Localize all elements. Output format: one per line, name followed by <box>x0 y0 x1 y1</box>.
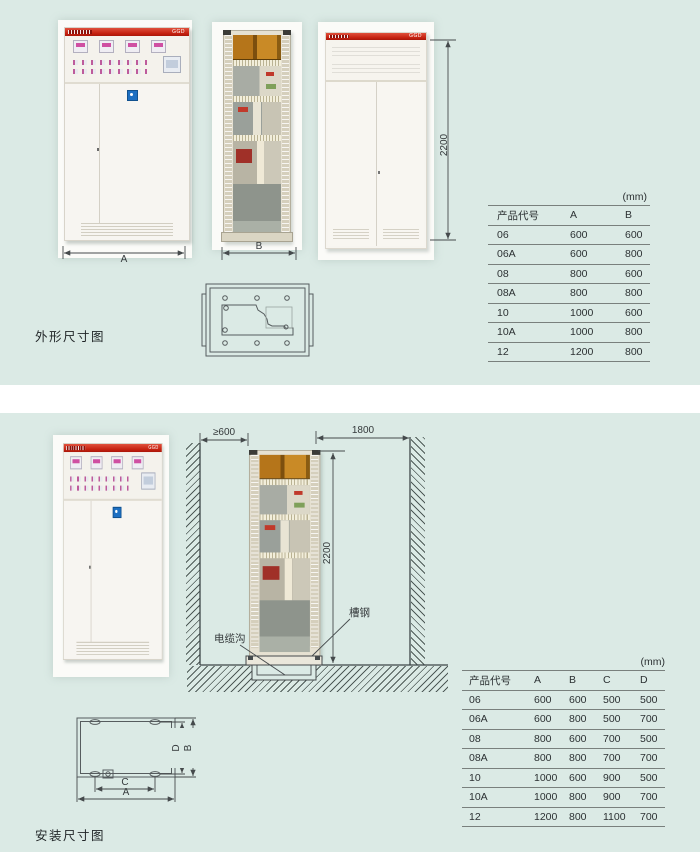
table-row: 08A800800700700 <box>462 749 665 769</box>
table-cell: 700 <box>601 733 638 745</box>
table-row: 06600600500500 <box>462 691 665 711</box>
cabinet-header-band: GGD <box>65 28 189 36</box>
cabinet-doors <box>64 501 162 659</box>
model-label: GGD <box>172 29 185 35</box>
door-seam <box>376 82 377 246</box>
table-cell: 08A <box>462 752 532 764</box>
ventilation-grille <box>76 642 149 655</box>
table-cell: 800 <box>532 752 567 764</box>
table-cell: 700 <box>638 713 665 725</box>
table-cell: 06A <box>488 248 568 260</box>
table-cell: 900 <box>601 772 638 784</box>
plan-dim-d-label: D <box>171 728 183 768</box>
louver-panel <box>326 40 426 82</box>
table-row: 101000600900500 <box>462 769 665 789</box>
table-cell: 06 <box>462 694 532 706</box>
multifunction-meter <box>141 472 155 489</box>
dim-b-label: B <box>239 241 279 253</box>
ventilation-grille <box>333 229 369 240</box>
table-row: 10A1000800900700 <box>462 788 665 808</box>
outline-dim-table: (mm) 产品代号AB0660060006A6008000880060008A8… <box>488 190 650 362</box>
cable-compartment <box>260 600 310 652</box>
side-view-photo <box>212 22 302 250</box>
outline-section-title: 外形尺寸图 <box>35 326 105 345</box>
table-cell: 600 <box>567 694 601 706</box>
table-cell: 600 <box>568 248 623 260</box>
table-row: 08A800800 <box>488 284 650 304</box>
equipment-compartment <box>260 520 310 553</box>
column-header: A <box>532 674 567 686</box>
equipment-compartment <box>233 66 281 95</box>
channel-steel-label: 槽钢 <box>349 607 370 619</box>
table-cell: 800 <box>623 326 650 338</box>
door-lock-icon <box>378 171 380 174</box>
table-cell: 500 <box>638 733 665 745</box>
table-cell: 800 <box>567 713 601 725</box>
table-cell: 700 <box>638 791 665 803</box>
table-row: 06A600800500700 <box>462 710 665 730</box>
front-view-photo: GGD <box>58 20 192 258</box>
table-header-row: 产品代号AB <box>488 205 650 226</box>
table-cell: 800 <box>567 811 601 823</box>
frame-post <box>225 35 232 233</box>
column-header: D <box>638 674 665 686</box>
right-wall-hatch <box>411 437 425 665</box>
table-cell: 800 <box>568 268 623 280</box>
table-cell: 500 <box>601 713 638 725</box>
table-cell: 12 <box>462 811 532 823</box>
table-cell: 10 <box>462 772 532 784</box>
table-cell: 800 <box>623 346 650 358</box>
cable-trench-label: 电缆沟 <box>214 633 246 645</box>
rear-clearance-label: 1800 <box>331 425 395 437</box>
busbar-compartment <box>260 455 310 480</box>
table-cell: 800 <box>623 248 650 260</box>
column-header: B <box>623 209 650 221</box>
table-cell: 10A <box>462 791 532 803</box>
panel-meter <box>132 456 144 469</box>
table-cell: 1100 <box>601 811 638 823</box>
table-cell: 800 <box>567 791 601 803</box>
cable-compartment <box>233 184 281 237</box>
table-cell: 600 <box>532 713 567 725</box>
column-header: 产品代号 <box>462 673 532 688</box>
brand-logo <box>66 446 85 450</box>
table-cell: 800 <box>623 287 650 299</box>
table-cell: 700 <box>638 752 665 764</box>
table-cell: 800 <box>567 752 601 764</box>
table-cell: 800 <box>568 287 623 299</box>
table-row: 10A1000800 <box>488 323 650 343</box>
table-cell: 600 <box>568 229 623 241</box>
brand-logo <box>329 35 349 38</box>
install-section-title: 安装尺寸图 <box>35 825 105 844</box>
cabinet-doors <box>65 84 189 240</box>
busbar-compartment <box>233 35 281 60</box>
plan-dim-b-label: B <box>183 728 195 768</box>
brand-badge <box>113 507 122 518</box>
panel-meter <box>125 40 140 53</box>
equipment-compartment <box>233 102 281 135</box>
table-cell: 700 <box>638 811 665 823</box>
table-cell: 1000 <box>532 791 567 803</box>
multifunction-meter <box>163 56 181 73</box>
floor-hatch <box>187 666 448 692</box>
cabinet-internal <box>249 450 320 657</box>
table-cell: 700 <box>601 752 638 764</box>
table-cell: 1000 <box>568 307 623 319</box>
door-seam <box>91 501 92 643</box>
table-row: 08800600 <box>488 265 650 285</box>
column-header: 产品代号 <box>488 208 568 223</box>
table-cell: 600 <box>623 268 650 280</box>
brand-logo <box>68 30 92 34</box>
table-cell: 600 <box>623 229 650 241</box>
equipment-compartment <box>233 141 281 184</box>
switch-row <box>70 486 128 491</box>
table-cell: 500 <box>638 772 665 784</box>
table-cell: 1200 <box>568 346 623 358</box>
ventilation-grille <box>383 229 419 240</box>
table-cell: 08A <box>488 287 568 299</box>
panel-meter <box>73 40 88 53</box>
outline-section: GGD <box>0 0 700 385</box>
panel-meter <box>111 456 123 469</box>
table-row: 06A600800 <box>488 245 650 265</box>
cabinet-front: GGD <box>64 27 190 241</box>
table-cell: 800 <box>532 733 567 745</box>
front-view-photo: GGD <box>53 435 169 677</box>
column-header: A <box>568 209 623 221</box>
internal-components <box>260 455 310 646</box>
panel-meter <box>70 456 82 469</box>
cabinet-header-band: GGD <box>326 33 426 40</box>
table-cell: 08 <box>488 268 568 280</box>
ventilation-grille <box>81 223 173 236</box>
table-row: 101000600 <box>488 304 650 324</box>
catalog-page: GGD <box>0 0 700 852</box>
left-clearance-label: ≥600 <box>198 427 250 439</box>
table-cell: 900 <box>601 791 638 803</box>
model-label: GGD <box>148 445 158 451</box>
table-row: 08800600700500 <box>462 730 665 750</box>
plan-dim-a-label: A <box>116 787 136 799</box>
table-cell: 500 <box>601 694 638 706</box>
table-cell: 12 <box>488 346 568 358</box>
cabinet-internal <box>223 30 291 242</box>
table-cell: 600 <box>623 307 650 319</box>
table-unit-label: (mm) <box>488 190 650 205</box>
equipment-compartment <box>260 485 310 514</box>
rear-view-photo: GGD <box>318 22 434 260</box>
table-row: 121200800 <box>488 343 650 363</box>
table-cell: 08 <box>462 733 532 745</box>
table-header-row: 产品代号ABCD <box>462 670 665 691</box>
equipment-compartment <box>260 558 310 600</box>
height-dim-label: 2200 <box>322 533 334 573</box>
frame-post <box>251 455 258 648</box>
frame-post <box>282 35 289 233</box>
rear-doors <box>328 82 424 246</box>
internal-components <box>233 35 281 231</box>
table-cell: 1200 <box>532 811 567 823</box>
cabinet-front: GGD <box>63 443 163 660</box>
table-cell: 600 <box>567 772 601 784</box>
column-header: C <box>601 674 638 686</box>
model-label: GGD <box>409 34 422 39</box>
install-section: GGD <box>0 413 700 852</box>
switch-row <box>73 69 147 74</box>
switch-row <box>70 476 128 481</box>
instrument-panel <box>64 452 162 501</box>
panel-meter <box>151 40 166 53</box>
dim-a-label: A <box>104 254 144 266</box>
table-cell: 600 <box>567 733 601 745</box>
door-lock-icon <box>97 148 99 151</box>
top-view-diagram <box>200 280 315 360</box>
table-cell: 06 <box>488 229 568 241</box>
table-unit-label: (mm) <box>462 655 665 670</box>
cabinet-header-band: GGD <box>64 444 162 452</box>
table-cell: 06A <box>462 713 532 725</box>
dim-height-label: 2200 <box>439 127 451 163</box>
table-cell: 1000 <box>532 772 567 784</box>
instrument-panel <box>65 36 189 84</box>
door-seam <box>99 84 100 224</box>
door-lock-icon <box>89 566 91 569</box>
panel-meter <box>99 40 114 53</box>
left-wall-hatch <box>186 443 200 665</box>
table-cell: 1000 <box>568 326 623 338</box>
table-cell: 600 <box>532 694 567 706</box>
table-cell: 500 <box>638 694 665 706</box>
table-cell: 10 <box>488 307 568 319</box>
cabinet-rear: GGD <box>325 32 427 249</box>
brand-badge <box>127 90 138 101</box>
table-cell: 10A <box>488 326 568 338</box>
table-row: 1212008001100700 <box>462 808 665 828</box>
table-row: 06600600 <box>488 226 650 246</box>
panel-meter <box>91 456 103 469</box>
switch-row <box>73 60 147 65</box>
frame-post <box>311 455 318 648</box>
column-header: B <box>567 674 601 686</box>
install-dim-table: (mm) 产品代号ABCD0660060050050006A6008005007… <box>462 655 665 827</box>
